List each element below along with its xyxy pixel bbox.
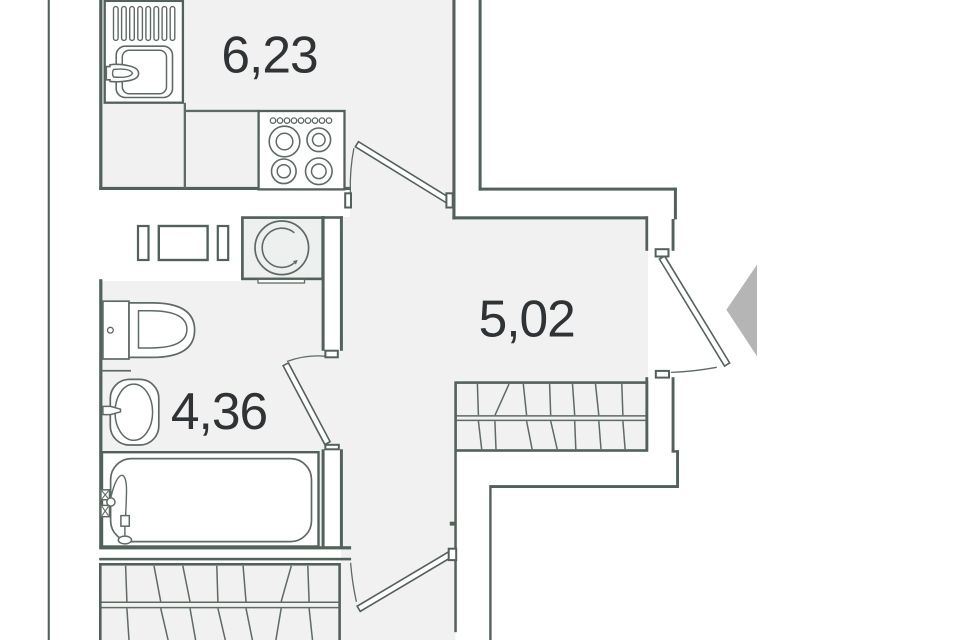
- svg-text:5,02: 5,02: [479, 289, 575, 347]
- svg-text:4,36: 4,36: [171, 382, 267, 440]
- svg-text:6,23: 6,23: [221, 25, 317, 83]
